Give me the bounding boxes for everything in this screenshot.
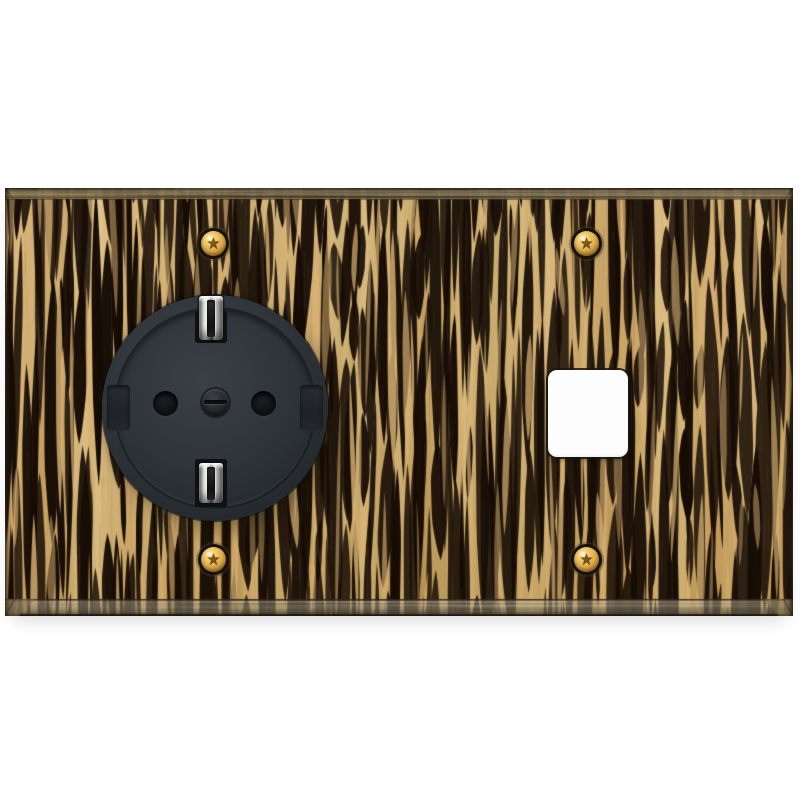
earth-clip-top	[199, 296, 223, 340]
schuko-socket	[102, 295, 328, 521]
image-caption: Product photo: horizontal two-gang wall …	[0, 0, 1, 1]
fixing-screw-bottom-right	[574, 547, 599, 572]
screw-slot	[204, 400, 227, 404]
socket-center-screw	[202, 389, 229, 416]
fixing-screw-top-right	[574, 231, 599, 256]
plug-guide-notch-left	[107, 385, 130, 431]
pin-hole-right	[251, 391, 276, 416]
fixing-screw-top-left	[201, 231, 226, 256]
pin-hole-left	[153, 391, 178, 416]
plug-guide-notch-right	[300, 385, 323, 431]
earth-clip-bottom	[199, 463, 223, 503]
wall-plate	[5, 188, 793, 616]
empty-module-opening	[548, 370, 628, 457]
fixing-screw-bottom-left	[201, 547, 226, 572]
